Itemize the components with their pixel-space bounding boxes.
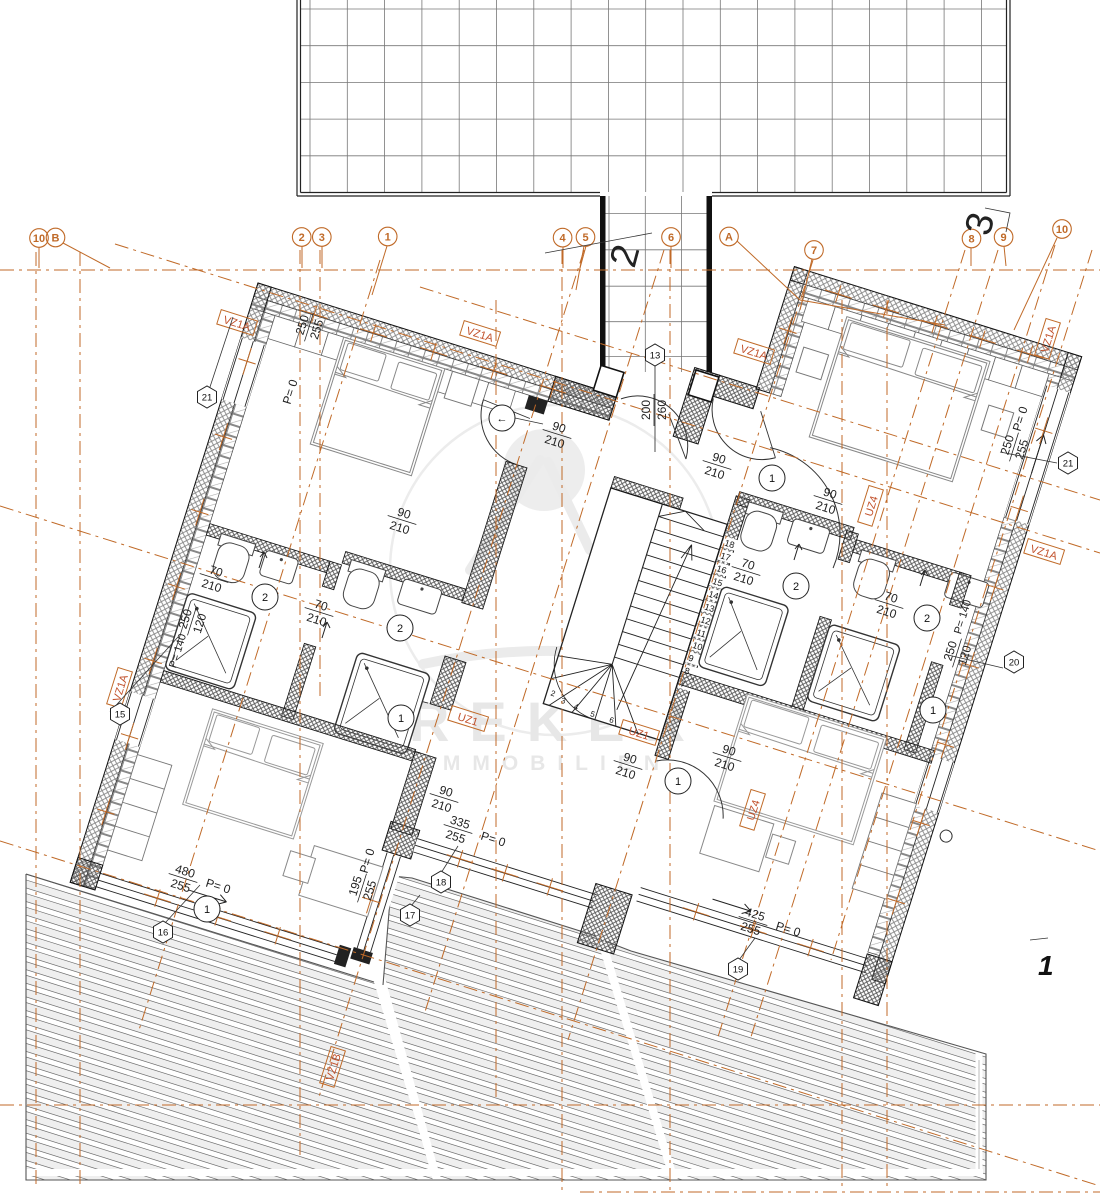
svg-text:1: 1 [930,705,936,717]
svg-text:13: 13 [650,351,661,362]
svg-text:18: 18 [436,878,447,889]
svg-text:2: 2 [924,613,930,625]
svg-text:1: 1 [385,232,391,244]
svg-text:2: 2 [262,592,268,604]
svg-text:21: 21 [202,393,213,404]
svg-text:1: 1 [769,473,775,485]
svg-text:19: 19 [733,965,744,976]
svg-text:9: 9 [1001,232,1007,244]
svg-text:6: 6 [668,232,674,244]
svg-text:3: 3 [319,232,325,244]
svg-text:1: 1 [675,776,681,788]
svg-text:15: 15 [115,710,126,721]
svg-text:17: 17 [405,911,416,922]
svg-text:A: A [725,232,733,244]
svg-text:1: 1 [204,904,210,916]
svg-text:7: 7 [811,245,817,257]
svg-text:1: 1 [398,713,404,725]
svg-text:10: 10 [1056,224,1068,236]
svg-text:200: 200 [639,400,653,420]
svg-text:B: B [52,233,60,245]
svg-text:16: 16 [158,928,169,939]
svg-text:2: 2 [793,581,799,593]
svg-text:260: 260 [655,400,669,420]
svg-text:←: ← [497,413,508,425]
svg-text:20: 20 [1009,658,1020,669]
svg-text:1: 1 [1038,950,1054,981]
svg-text:10: 10 [33,233,45,245]
svg-text:5: 5 [582,232,588,244]
svg-text:8: 8 [968,234,974,246]
svg-text:21: 21 [1063,459,1074,470]
svg-text:2: 2 [299,232,305,244]
svg-text:2: 2 [397,623,403,635]
svg-text:4: 4 [560,233,567,245]
